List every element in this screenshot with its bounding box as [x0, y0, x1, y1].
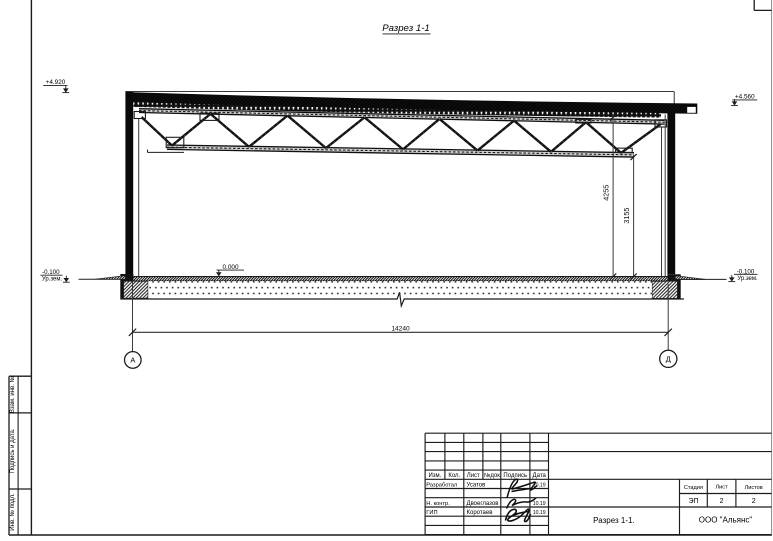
svg-text:Ур.зем.: Ур.зем.	[42, 277, 63, 283]
svg-text:2: 2	[752, 498, 756, 505]
svg-text:4255: 4255	[602, 185, 611, 201]
svg-text:Д: Д	[666, 355, 671, 364]
svg-text:Лист: Лист	[467, 473, 480, 479]
svg-text:Разработал: Разработал	[426, 482, 457, 488]
svg-text:+4.920: +4.920	[46, 79, 66, 86]
svg-text:Разрез 1-1.: Разрез 1-1.	[593, 516, 635, 525]
svg-text:10.19: 10.19	[533, 510, 546, 516]
svg-text:Разрез 1-1: Разрез 1-1	[382, 23, 430, 34]
svg-text:ЭП: ЭП	[688, 498, 698, 505]
svg-text:Инв. № подл.: Инв. № подл.	[9, 493, 16, 531]
svg-text:Дата: Дата	[533, 473, 547, 479]
svg-text:Изм.: Изм.	[428, 473, 441, 479]
svg-text:Двоеглазов: Двоеглазов	[467, 501, 499, 507]
svg-text:Усатов: Усатов	[467, 482, 486, 488]
svg-text:А: А	[130, 356, 135, 365]
svg-text:Подпись и дата.: Подпись и дата.	[10, 428, 16, 473]
svg-text:Листов: Листов	[745, 485, 763, 491]
svg-text:10.19: 10.19	[533, 501, 546, 507]
svg-text:ООО "Альянс": ООО "Альянс"	[699, 515, 753, 524]
svg-text:ГИП: ГИП	[426, 510, 437, 516]
svg-text:2: 2	[720, 498, 724, 505]
svg-text:Подпись: Подпись	[503, 473, 527, 479]
svg-text:Кол.: Кол.	[448, 473, 460, 479]
svg-text:Коротаев: Коротаев	[467, 510, 493, 516]
svg-text:№док: №док	[484, 472, 500, 479]
svg-text:14240: 14240	[391, 325, 410, 332]
svg-text:Н. контр.: Н. контр.	[426, 501, 450, 507]
svg-text:Стадия: Стадия	[684, 485, 703, 491]
svg-text:3155: 3155	[622, 208, 631, 224]
svg-text:Лист: Лист	[716, 485, 729, 491]
svg-text:Взам. инв. №: Взам. инв. №	[9, 376, 16, 413]
svg-text:Ур.зем.: Ур.зем.	[737, 276, 758, 282]
